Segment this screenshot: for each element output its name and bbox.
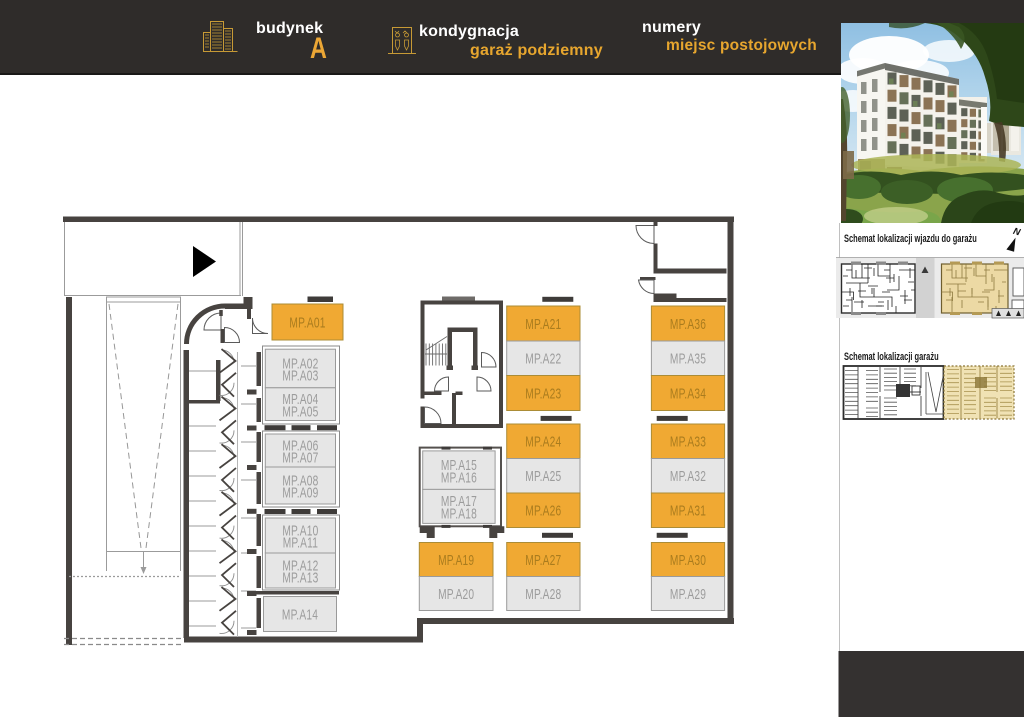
svg-text:MP.A03: MP.A03 bbox=[282, 367, 318, 385]
svg-text:MP.A26: MP.A26 bbox=[525, 502, 561, 520]
svg-text:MP.A29: MP.A29 bbox=[670, 585, 706, 603]
svg-text:Schemat lokalizacji garażu: Schemat lokalizacji garażu bbox=[844, 349, 939, 362]
svg-text:MP.A07: MP.A07 bbox=[282, 449, 318, 467]
svg-text:MP.A33: MP.A33 bbox=[670, 433, 706, 451]
svg-text:MP.A32: MP.A32 bbox=[670, 467, 706, 485]
svg-text:MP.A21: MP.A21 bbox=[525, 315, 561, 333]
svg-text:MP.A18: MP.A18 bbox=[441, 504, 477, 522]
svg-text:MP.A11: MP.A11 bbox=[283, 534, 318, 552]
svg-text:MP.A30: MP.A30 bbox=[670, 551, 706, 569]
svg-text:MP.A01: MP.A01 bbox=[289, 313, 325, 331]
svg-text:N: N bbox=[1012, 226, 1023, 239]
svg-text:MP.A35: MP.A35 bbox=[670, 350, 706, 368]
svg-text:MP.A34: MP.A34 bbox=[670, 384, 706, 402]
svg-text:MP.A36: MP.A36 bbox=[670, 315, 706, 333]
svg-text:MP.A22: MP.A22 bbox=[525, 350, 561, 368]
svg-text:MP.A14: MP.A14 bbox=[282, 605, 318, 623]
svg-text:MP.A23: MP.A23 bbox=[525, 384, 561, 402]
svg-text:MP.A27: MP.A27 bbox=[525, 551, 561, 569]
svg-text:MP.A13: MP.A13 bbox=[282, 569, 318, 587]
svg-text:MP.A20: MP.A20 bbox=[438, 585, 474, 603]
svg-text:Schemat lokalizacji wjazdu do: Schemat lokalizacji wjazdu do garażu bbox=[844, 231, 977, 244]
svg-text:MP.A28: MP.A28 bbox=[525, 585, 561, 603]
svg-text:MP.A09: MP.A09 bbox=[282, 484, 318, 502]
svg-text:MP.A24: MP.A24 bbox=[525, 433, 561, 451]
svg-text:MP.A16: MP.A16 bbox=[441, 468, 477, 486]
svg-text:MP.A25: MP.A25 bbox=[525, 467, 561, 485]
svg-text:MP.A31: MP.A31 bbox=[670, 502, 706, 520]
svg-text:MP.A05: MP.A05 bbox=[282, 402, 318, 420]
svg-text:MP.A19: MP.A19 bbox=[438, 551, 474, 569]
